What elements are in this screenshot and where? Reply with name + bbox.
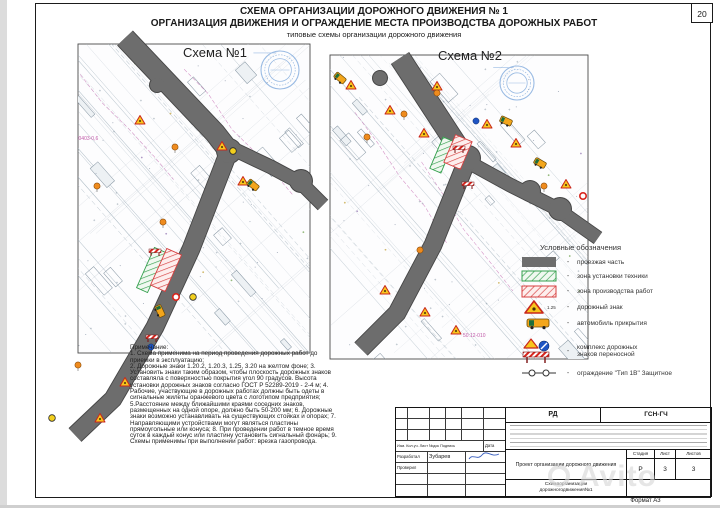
sheet-title-line2: дорожногодвижения№1 xyxy=(506,488,626,494)
developer-name: Зубарев xyxy=(428,452,466,462)
title-block: Изм. Кол.уч. Лист №док Подпись Дата Разр… xyxy=(395,407,712,497)
role-developer: Разработал xyxy=(396,452,428,462)
legend-item-cover-vehicle: - автомобиль прикрытия xyxy=(519,317,647,330)
sheet-title: Схемаорганизации дорожногодвижения№1 xyxy=(506,480,627,496)
roadway-swatch xyxy=(519,256,559,268)
legend-label: проезжая часть xyxy=(577,259,624,266)
scheme2-label: Схема №2 xyxy=(415,48,525,63)
org-details-cell xyxy=(506,423,711,450)
road-sign-icon: 1.25 xyxy=(519,299,559,315)
legend-dash: - xyxy=(564,273,572,280)
legend-label: зона производства работ xyxy=(577,288,653,295)
page-edge-left xyxy=(0,0,7,508)
legend-dash: - xyxy=(564,304,572,311)
legend-item-work-zone: - зона производства работ xyxy=(519,285,653,298)
legend-dash: - xyxy=(564,288,572,295)
developer-signature xyxy=(466,452,505,462)
legend-dash: - xyxy=(564,259,572,266)
sheets-value: 3 xyxy=(676,459,711,479)
legend-label: автомобиль прикрытия xyxy=(577,320,647,327)
org-code: ГСН-ГЧ xyxy=(601,408,711,422)
signature-stroke xyxy=(467,452,503,462)
signature-cell xyxy=(627,480,711,496)
notes-lines: 1. Схема применима на период проведения … xyxy=(130,351,396,445)
doc-subtitle: типовые схемы организации дорожного движ… xyxy=(36,30,712,39)
cover-vehicle-icon xyxy=(519,317,559,330)
note-line: Схемы применимы при выполнении работ: вр… xyxy=(130,439,396,445)
legend-item-sign-complex: - комплекс дорожных знаков переносной xyxy=(519,338,651,364)
legend-item-fence: - ограждение "Тип 1В" Защитное xyxy=(519,368,672,378)
date-header: Дата xyxy=(484,441,505,451)
legend-label: дорожный знак xyxy=(577,304,623,311)
title-block-right: РД ГСН-ГЧ Проект организации дорожного д… xyxy=(506,408,711,496)
stage-label: Стадия xyxy=(627,450,655,458)
equipment-zone-swatch xyxy=(519,270,559,282)
sign-complex-icon xyxy=(519,338,559,364)
legend-dash: - xyxy=(564,320,572,327)
role-checker: Проверил xyxy=(396,463,428,473)
sheet-label: Лист xyxy=(655,450,676,458)
work-zone-swatch xyxy=(519,285,559,298)
legend-item-road-sign: 1.25 - дорожный знак xyxy=(519,299,623,315)
fence-icon xyxy=(519,368,559,378)
stage-sheet-grid: Стадия Лист Листов Р 3 3 xyxy=(627,450,711,479)
revision-header: Изм. Кол.уч. Лист №док Подпись xyxy=(396,441,484,451)
project-name: Проект организации дорожного движения xyxy=(506,450,627,479)
checker-name xyxy=(428,463,466,473)
sheet: 50:080403-0,650:12-010 20 СХЕМА ОРГАНИЗА… xyxy=(0,0,720,508)
sheets-label: Листов xyxy=(676,450,711,458)
micro-text xyxy=(510,425,707,447)
doc-title-line1: СХЕМА ОРГАНИЗАЦИИ ДОРОЖНОГО ДВИЖЕНИЯ № 1 xyxy=(36,6,712,17)
legend-label: ограждение "Тип 1В" Защитное xyxy=(577,370,672,377)
legend-label: комплекс дорожных знаков переносной xyxy=(577,344,651,358)
legend-dash: - xyxy=(564,370,572,377)
format-label: Формат А3 xyxy=(608,498,683,504)
legend-item-equipment-zone: - зона установки техники xyxy=(519,270,648,282)
doc-title-line2: ОРГАНИЗАЦИЯ ДВИЖЕНИЯ И ОГРАЖДЕНИЕ МЕСТА … xyxy=(36,18,712,29)
sheet-value: 3 xyxy=(655,459,676,479)
notes-block: Примечание: 1. Схема применима на период… xyxy=(130,345,396,446)
doc-code: РД xyxy=(506,408,601,422)
scheme1-label: Схема №1 xyxy=(160,45,270,60)
legend-item-roadway: - проезжая часть xyxy=(519,256,624,268)
sign-code: 1.25 xyxy=(547,305,556,310)
stage-value: Р xyxy=(627,459,655,479)
legend-label: зона установки техники xyxy=(577,273,648,280)
legend-dash: - xyxy=(564,348,572,355)
legend-heading: Условные обозначения xyxy=(540,243,621,252)
title-block-left-grid: Изм. Кол.уч. Лист №док Подпись Дата Разр… xyxy=(396,408,506,496)
